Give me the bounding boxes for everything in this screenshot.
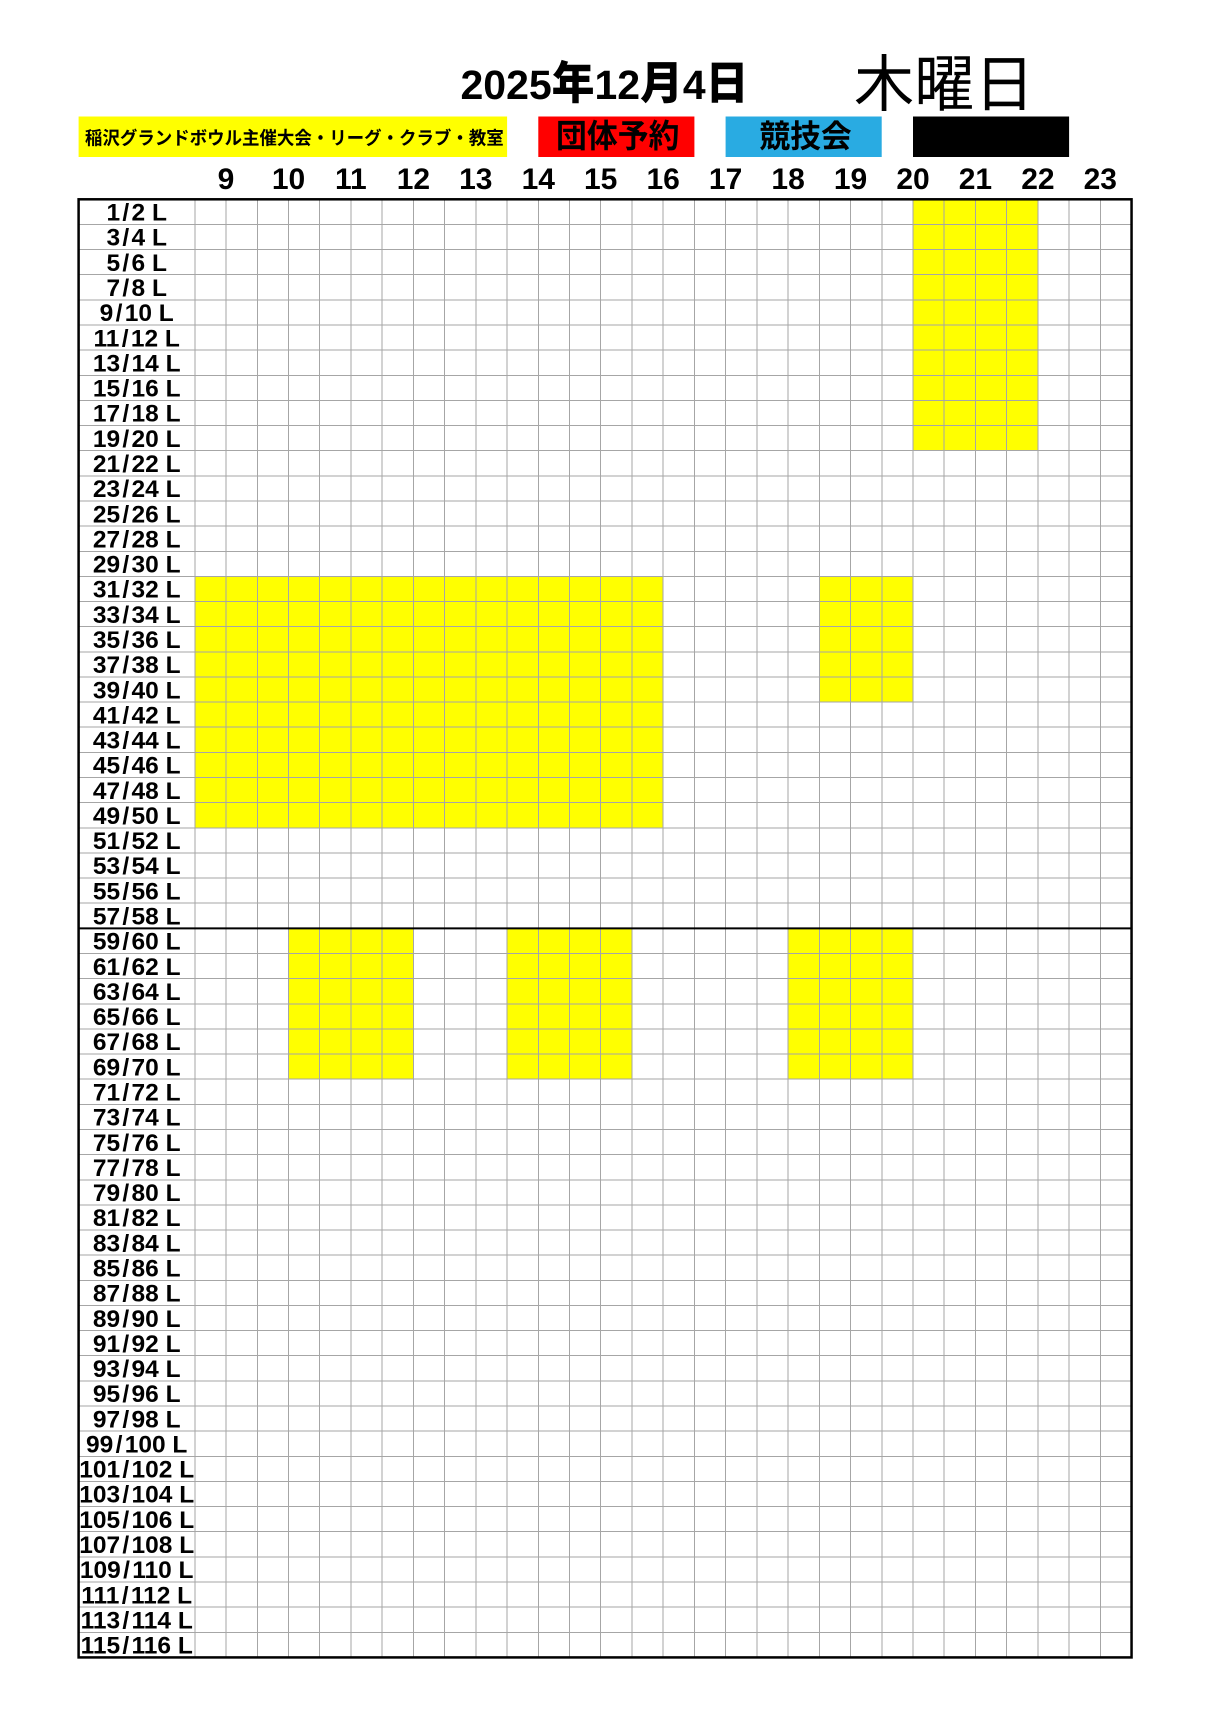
- svg-text:20: 20: [896, 163, 929, 196]
- svg-text:1/2 L: 1/2 L: [106, 200, 167, 227]
- svg-text:111/112 L: 111/112 L: [81, 1582, 192, 1609]
- svg-text:19/20 L: 19/20 L: [93, 426, 181, 453]
- svg-text:45/46 L: 45/46 L: [93, 753, 181, 780]
- svg-text:12: 12: [397, 163, 430, 196]
- svg-text:35/36 L: 35/36 L: [93, 627, 181, 654]
- svg-text:59/60 L: 59/60 L: [93, 929, 181, 956]
- svg-text:27/28 L: 27/28 L: [93, 526, 181, 553]
- svg-text:5/6 L: 5/6 L: [106, 250, 167, 277]
- svg-text:22: 22: [1021, 163, 1054, 196]
- svg-text:51/52 L: 51/52 L: [93, 828, 181, 855]
- svg-text:63/64 L: 63/64 L: [93, 979, 181, 1006]
- svg-text:17: 17: [709, 163, 742, 196]
- svg-text:3/4 L: 3/4 L: [106, 225, 167, 252]
- svg-text:21: 21: [959, 163, 992, 196]
- svg-text:103/104 L: 103/104 L: [79, 1482, 194, 1509]
- svg-text:73/74 L: 73/74 L: [93, 1105, 181, 1132]
- svg-text:17/18 L: 17/18 L: [93, 401, 181, 428]
- svg-text:57/58 L: 57/58 L: [93, 904, 181, 931]
- svg-text:95/96 L: 95/96 L: [93, 1381, 181, 1408]
- svg-text:9/10 L: 9/10 L: [100, 300, 174, 327]
- svg-text:47/48 L: 47/48 L: [93, 778, 181, 805]
- svg-text:105/106 L: 105/106 L: [79, 1507, 194, 1534]
- svg-text:7/8 L: 7/8 L: [106, 275, 167, 302]
- svg-text:89/90 L: 89/90 L: [93, 1306, 181, 1333]
- svg-text:11/12 L: 11/12 L: [94, 325, 180, 352]
- svg-text:97/98 L: 97/98 L: [93, 1406, 181, 1433]
- svg-text:67/68 L: 67/68 L: [93, 1029, 181, 1056]
- svg-text:39/40 L: 39/40 L: [93, 677, 181, 704]
- svg-text:19: 19: [834, 163, 867, 196]
- svg-text:18: 18: [771, 163, 804, 196]
- svg-text:23: 23: [1084, 163, 1117, 196]
- svg-text:29/30 L: 29/30 L: [93, 552, 181, 579]
- svg-text:13/14 L: 13/14 L: [93, 350, 181, 377]
- svg-text:109/110 L: 109/110 L: [80, 1557, 194, 1584]
- svg-text:65/66 L: 65/66 L: [93, 1004, 181, 1031]
- svg-text:107/108 L: 107/108 L: [79, 1532, 194, 1559]
- svg-text:15/16 L: 15/16 L: [93, 376, 181, 403]
- svg-text:77/78 L: 77/78 L: [93, 1155, 181, 1182]
- svg-text:14: 14: [522, 163, 556, 196]
- svg-text:99/100 L: 99/100 L: [86, 1432, 187, 1459]
- svg-text:61/62 L: 61/62 L: [93, 954, 181, 981]
- svg-text:9: 9: [218, 163, 235, 196]
- svg-text:55/56 L: 55/56 L: [93, 878, 181, 905]
- svg-text:37/38 L: 37/38 L: [93, 652, 181, 679]
- svg-text:79/80 L: 79/80 L: [93, 1180, 181, 1207]
- svg-text:113/114 L: 113/114 L: [81, 1607, 193, 1634]
- svg-text:13: 13: [459, 163, 492, 196]
- svg-text:16: 16: [647, 163, 680, 196]
- svg-text:15: 15: [584, 163, 617, 196]
- svg-text:21/22 L: 21/22 L: [93, 451, 181, 478]
- svg-text:81/82 L: 81/82 L: [93, 1205, 181, 1232]
- svg-text:33/34 L: 33/34 L: [93, 602, 181, 629]
- svg-text:71/72 L: 71/72 L: [93, 1080, 181, 1107]
- svg-text:69/70 L: 69/70 L: [93, 1054, 181, 1081]
- svg-text:49/50 L: 49/50 L: [93, 803, 181, 830]
- svg-text:25/26 L: 25/26 L: [93, 501, 181, 528]
- svg-text:91/92 L: 91/92 L: [93, 1331, 181, 1358]
- svg-text:75/76 L: 75/76 L: [93, 1130, 181, 1157]
- svg-text:101/102 L: 101/102 L: [79, 1457, 194, 1484]
- svg-text:23/24 L: 23/24 L: [93, 476, 181, 503]
- svg-text:10: 10: [272, 163, 305, 196]
- svg-text:43/44 L: 43/44 L: [93, 728, 181, 755]
- svg-text:53/54 L: 53/54 L: [93, 853, 181, 880]
- svg-text:93/94 L: 93/94 L: [93, 1356, 181, 1383]
- svg-text:87/88 L: 87/88 L: [93, 1281, 181, 1308]
- svg-text:115/116 L: 115/116 L: [81, 1633, 193, 1660]
- svg-text:85/86 L: 85/86 L: [93, 1256, 181, 1283]
- svg-text:41/42 L: 41/42 L: [93, 702, 181, 729]
- svg-text:11: 11: [335, 163, 367, 196]
- svg-text:31/32 L: 31/32 L: [93, 577, 181, 604]
- svg-text:83/84 L: 83/84 L: [93, 1230, 181, 1257]
